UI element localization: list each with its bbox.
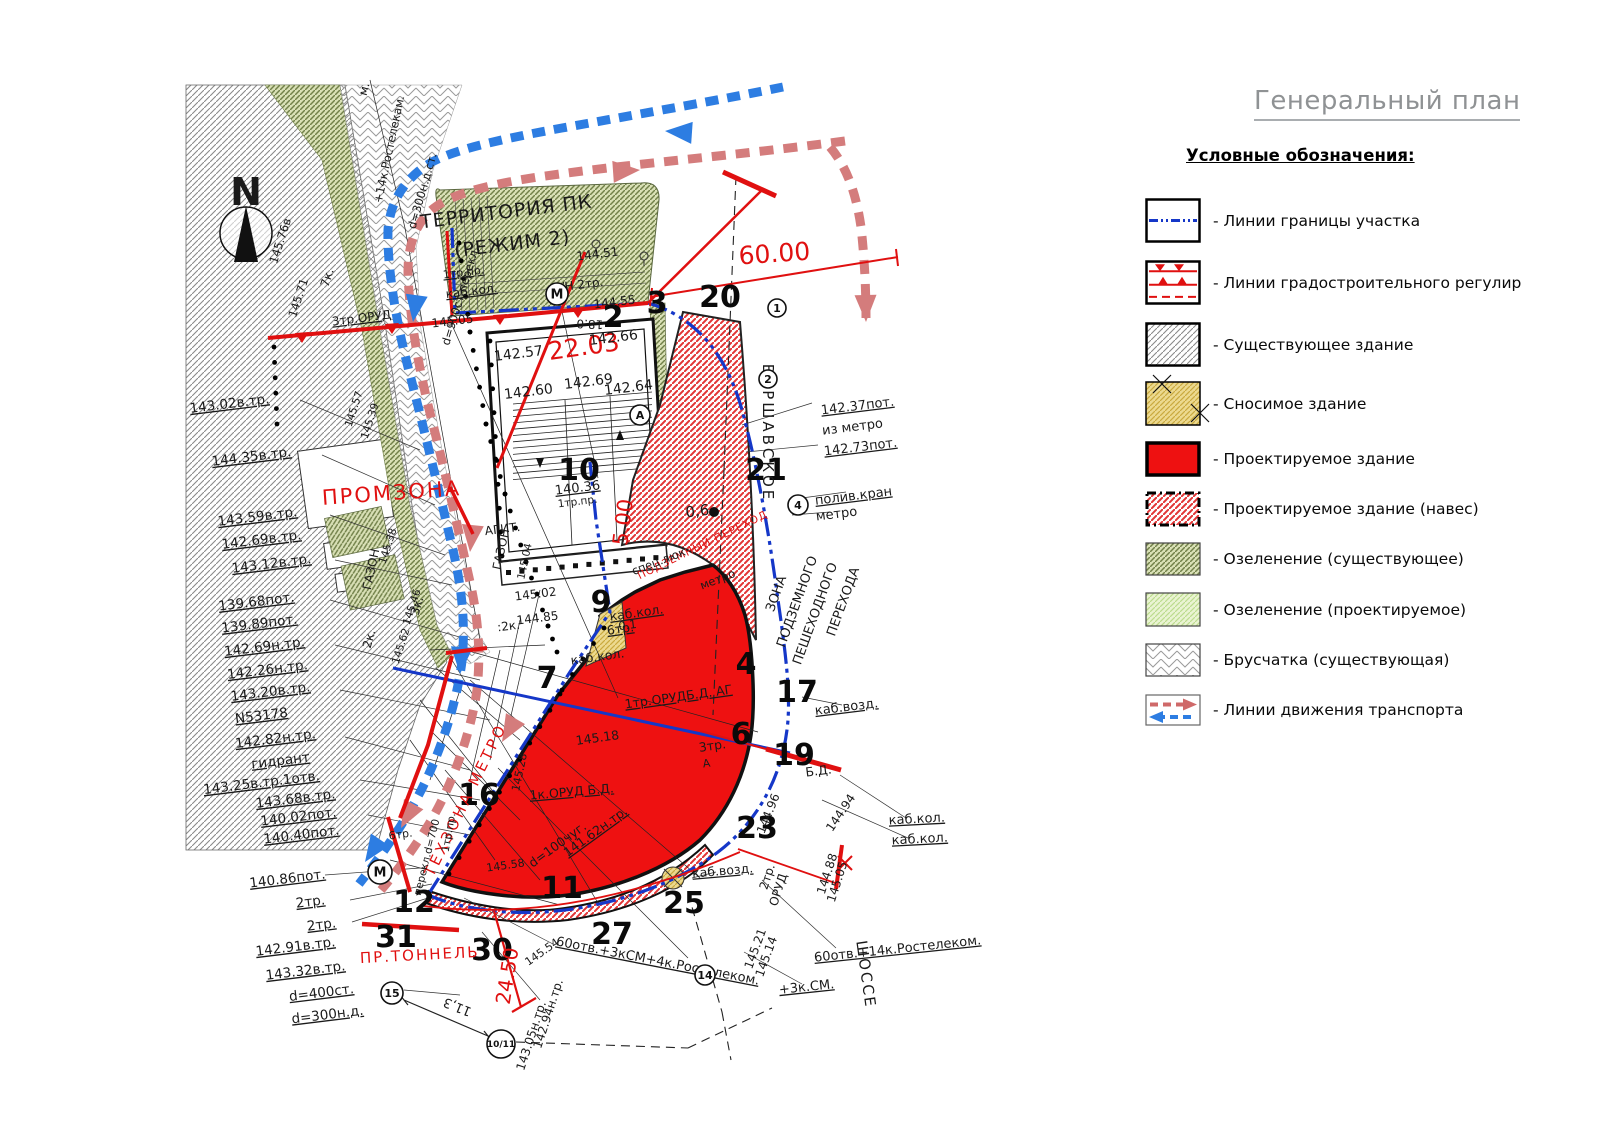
boundary-dot <box>484 422 489 427</box>
boundary-dot <box>272 360 277 365</box>
map-label: 60отв.+3кСМ+4к.Ростелеком. <box>555 934 761 988</box>
boundary-dot <box>555 650 560 655</box>
boundary-dot <box>488 339 493 344</box>
map-label: 0,6 <box>684 501 710 522</box>
map-elevation-label: 2тр. <box>295 892 326 911</box>
map-number-label: 11 <box>541 871 583 906</box>
boundary-dot <box>550 637 555 642</box>
map-label: 11,3 <box>441 994 473 1019</box>
map-elevation-label: 140.86пот. <box>249 866 327 891</box>
map-number-label: 9 <box>591 585 612 620</box>
map-circled-label: М <box>551 288 564 303</box>
boundary-dot <box>546 624 551 629</box>
boundary-dot <box>467 839 472 844</box>
boundary-dot <box>494 458 499 463</box>
genplan-screenshot: 2320109217417619231612313027112560.0022.… <box>0 0 1600 1131</box>
boundary-dot <box>548 708 553 713</box>
boundary-dot <box>273 391 278 396</box>
building-bottom-dot <box>533 567 538 572</box>
boundary-dot <box>447 872 452 877</box>
map-circled-label: А <box>636 409 645 422</box>
map-label: 145.02 <box>514 585 557 604</box>
map-circled-label: 10/11 <box>487 1040 515 1050</box>
map-label: 60отв.+14к.Ростелеком. <box>813 933 982 965</box>
map-number-label: 25 <box>663 886 705 921</box>
boundary-dot <box>560 688 565 693</box>
transport-arrow <box>664 120 692 144</box>
boundary-dot <box>490 386 495 391</box>
boundary-dot <box>273 375 278 380</box>
map-circled-label: 14 <box>697 969 713 982</box>
map-circled-label: 15 <box>384 987 399 1000</box>
map-number-label: 3 <box>647 286 668 321</box>
boundary-dot <box>508 509 513 514</box>
map-circled-label: 1 <box>773 302 781 315</box>
boundary-dot <box>496 482 501 487</box>
map-label: 6тр. <box>388 826 413 842</box>
map-circled-label: 2 <box>764 373 772 386</box>
map-label: 142.37пот. <box>820 395 895 419</box>
map-label: 145.54 <box>522 936 561 969</box>
boundary-dot <box>457 855 462 860</box>
map-elevation-label: 143.32в.тр. <box>265 958 347 984</box>
boundary-dot <box>497 506 502 511</box>
map-elevation-label: 2тр. <box>306 915 337 934</box>
building-bottom-dot <box>613 559 618 564</box>
boundary-dot <box>492 410 497 415</box>
map-circled-label: М <box>374 866 387 881</box>
boundary-dot <box>529 576 534 581</box>
map-label: 144.85 <box>516 609 559 628</box>
transport-arrow <box>855 295 877 322</box>
boundary-dot <box>537 724 542 729</box>
boundary-dot <box>488 439 493 444</box>
map-circled-label: 4 <box>794 499 802 512</box>
boundary-dot <box>480 403 485 408</box>
boundary-dot <box>493 434 498 439</box>
boundary-dot <box>274 406 279 411</box>
boundary-dot <box>474 366 479 371</box>
map-label: N <box>230 170 262 214</box>
map-label: 142.73пот. <box>823 436 898 460</box>
boundary-dot <box>591 641 596 646</box>
building-bottom-dot <box>627 558 632 563</box>
map-label: из метро <box>821 416 883 438</box>
map-label: каб.возд. <box>814 696 879 719</box>
boundary-dot <box>503 492 508 497</box>
map-label: каб.кол. <box>888 811 945 829</box>
map-elevation-label: d=400ст. <box>288 981 355 1005</box>
map-label: Б.Д. <box>804 761 832 779</box>
map-label: каб.кол. <box>891 831 948 849</box>
boundary-dot <box>471 348 476 353</box>
map-label: 18.0 <box>576 317 603 332</box>
boundary-dot <box>468 330 473 335</box>
map-elevation-label: 142.91в.тр. <box>255 934 337 960</box>
map-label: ЗОНА <box>763 574 790 614</box>
map-label: +3к.СМ. <box>778 977 835 998</box>
manhole-dot <box>709 507 719 517</box>
boundary-dot <box>489 362 494 367</box>
map-number-label: 20 <box>699 280 741 315</box>
map-number-label: 7 <box>537 661 558 696</box>
map-label: 144.94 <box>823 791 858 834</box>
boundary-dot <box>477 823 482 828</box>
building-bottom-dot <box>506 570 511 575</box>
map-label: :2к. <box>496 618 520 635</box>
map-number-label: 17 <box>776 675 818 710</box>
boundary-dot <box>527 741 532 746</box>
boundary-dot <box>275 422 280 427</box>
site-plan-drawing: 2320109217417619231612313027112560.0022.… <box>0 0 1600 1131</box>
boundary-dot <box>272 345 277 350</box>
map-number-label: 4 <box>736 647 757 682</box>
boundary-dot <box>570 672 575 677</box>
transport-line-pink-branch <box>830 147 866 318</box>
map-elevation-label: d=300н.д. <box>291 1003 365 1028</box>
map-red-label: 60.00 <box>738 237 811 271</box>
building-bottom-dot <box>586 562 591 567</box>
boundary-dot <box>498 474 503 479</box>
building-bottom-dot <box>546 566 551 571</box>
boundary-dot <box>477 385 482 390</box>
building-bottom-dot <box>573 563 578 568</box>
map-number-label: 6 <box>731 717 752 752</box>
